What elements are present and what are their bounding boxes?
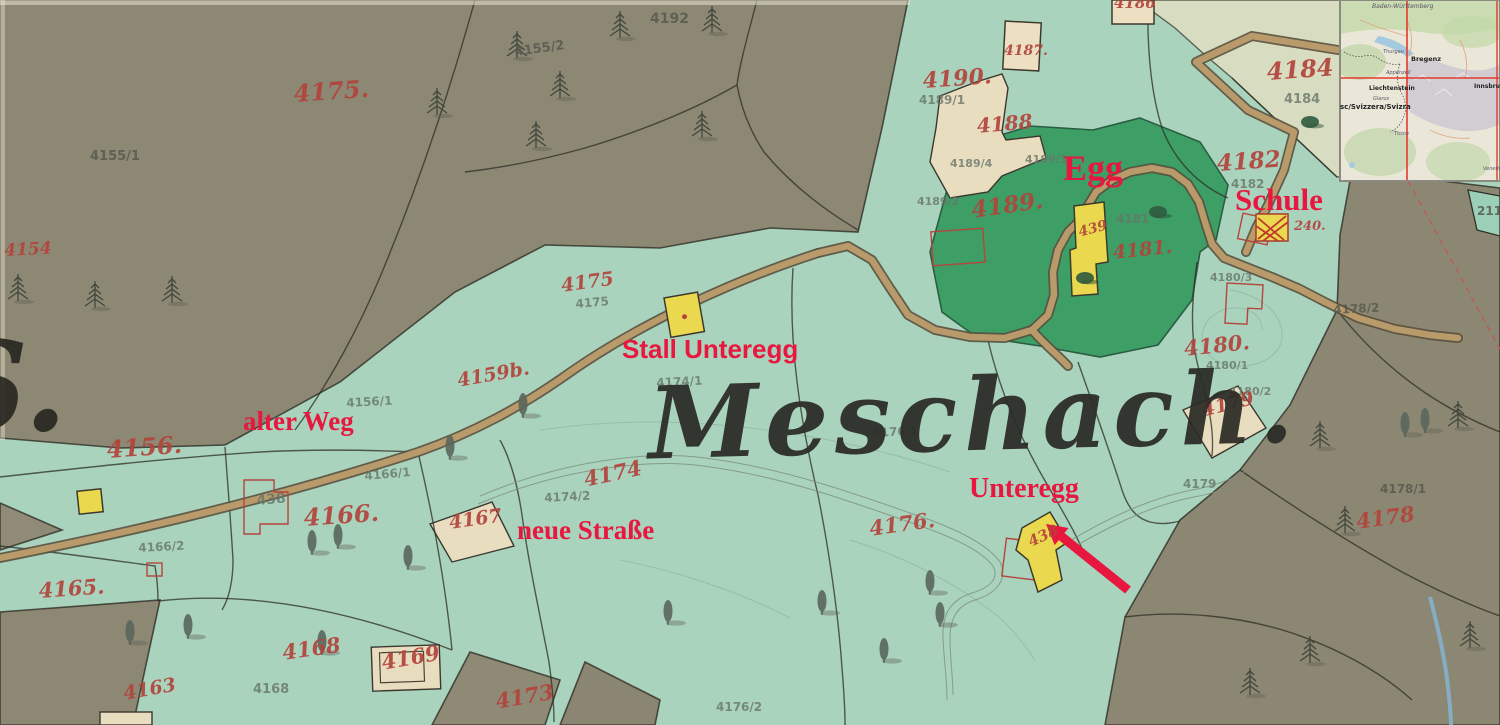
inset-overview-map: [1340, 0, 1500, 181]
historic-map-canvas: [0, 0, 1500, 725]
building-stall-unteregg: [664, 292, 704, 337]
sheet-edge-top: [0, 0, 910, 5]
building-4186: [1112, 0, 1154, 24]
building-schule: [1256, 214, 1288, 241]
building-438-old-site: [77, 489, 103, 514]
sheet-edge-left: [0, 0, 5, 440]
cadastral-map-screenshot: Meschach. S. 4175.4155/241924155/1415441…: [0, 0, 1500, 725]
building-4187: [1003, 21, 1041, 71]
